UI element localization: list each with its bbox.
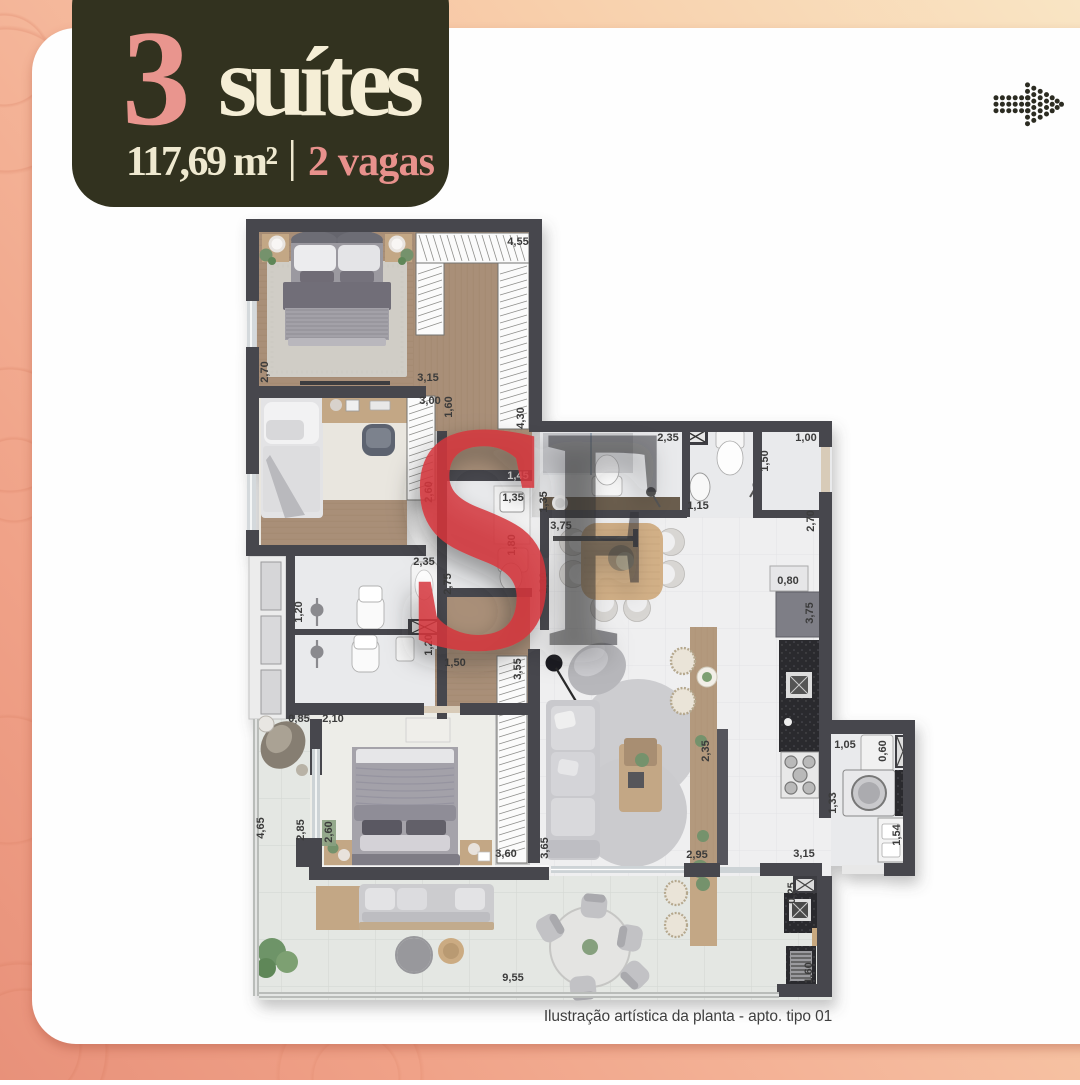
svg-text:4,55: 4,55	[507, 236, 528, 248]
svg-text:F: F	[545, 360, 666, 715]
svg-text:1,00: 1,00	[795, 432, 816, 444]
svg-text:2,70: 2,70	[805, 510, 817, 531]
svg-text:2 vagas: 2 vagas	[308, 139, 435, 185]
svg-text:117,69 m²: 117,69 m²	[126, 139, 278, 185]
svg-text:2,35: 2,35	[700, 740, 712, 761]
svg-text:2,60: 2,60	[323, 821, 335, 842]
svg-text:S: S	[404, 353, 558, 719]
svg-text:2,85: 2,85	[295, 819, 307, 840]
svg-text:1,54: 1,54	[891, 823, 903, 845]
svg-text:2,10: 2,10	[322, 713, 343, 725]
svg-text:1,33: 1,33	[827, 792, 839, 813]
svg-text:9,55: 9,55	[502, 972, 523, 984]
svg-text:4,65: 4,65	[255, 817, 267, 838]
svg-text:1,05: 1,05	[834, 739, 855, 751]
svg-text:3: 3	[122, 2, 191, 154]
svg-text:2,70: 2,70	[259, 361, 271, 382]
svg-text:0,85: 0,85	[288, 713, 309, 725]
svg-text:0,80: 0,80	[777, 575, 798, 587]
svg-text:0,25: 0,25	[786, 882, 798, 903]
svg-text:3,60: 3,60	[495, 848, 516, 860]
svg-text:3,15: 3,15	[793, 848, 814, 860]
svg-text:suítes: suítes	[218, 26, 424, 137]
svg-text:2,95: 2,95	[686, 849, 707, 861]
svg-text:0,60: 0,60	[877, 740, 889, 761]
svg-text:1,15: 1,15	[687, 500, 708, 512]
svg-text:3,75: 3,75	[804, 602, 816, 623]
svg-text:1,20: 1,20	[293, 601, 305, 622]
svg-text:3,65: 3,65	[539, 837, 551, 858]
svg-text:1,60: 1,60	[803, 962, 815, 983]
svg-text:1,50: 1,50	[759, 450, 771, 471]
